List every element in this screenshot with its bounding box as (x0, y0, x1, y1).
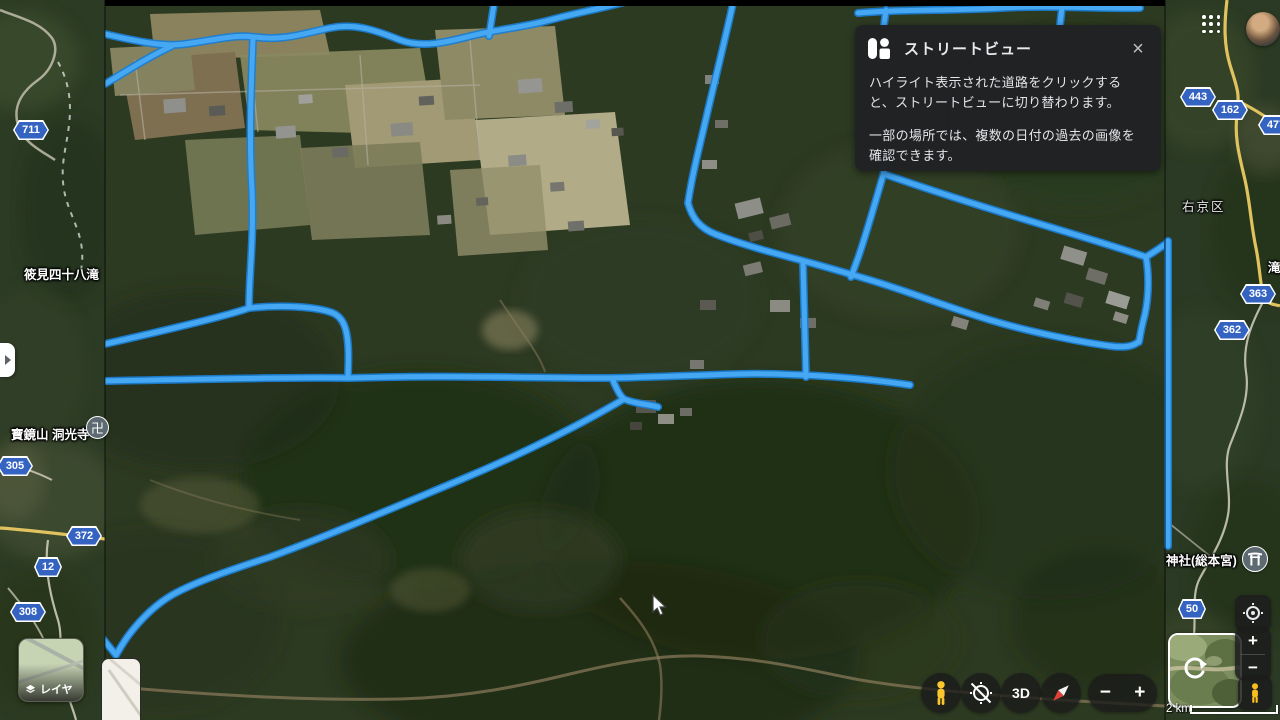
panel-paragraph-1: ハイライト表示された道路をクリックすると、ストリートビューに切り替わります。 (855, 73, 1161, 113)
route-shield-162: 162 (1212, 100, 1248, 120)
tilt-rotate-button[interactable] (961, 673, 1001, 713)
mini-zoom-in-button[interactable]: + (1235, 628, 1271, 654)
zoom-control: − + (1088, 674, 1157, 712)
google-apps-grid-icon[interactable] (1202, 15, 1221, 34)
shrine-torii-icon (1242, 546, 1268, 572)
panel-title: ストリートビュー (904, 38, 1127, 59)
3d-label: 3D (1012, 685, 1030, 701)
route-shield-477: 477 (1258, 115, 1280, 135)
right-seam (1164, 0, 1166, 720)
route-shield-363: 363 (1240, 284, 1276, 304)
scale-bar-line (1190, 712, 1278, 714)
mini-zoom-control: + − (1235, 628, 1271, 680)
route-shield-443: 443 (1180, 87, 1216, 107)
mini-pegman-button[interactable] (1238, 676, 1272, 710)
layers-button[interactable]: レイヤ (18, 638, 84, 702)
route-shield-308: 308 (10, 602, 46, 622)
place-label-temple: 寶鏡山 洞光寺 (11, 424, 89, 443)
route-shield-305: 305 (0, 456, 33, 476)
route-shield-711: 711 (13, 120, 49, 140)
close-icon[interactable]: × (1127, 38, 1149, 60)
compass-needle-icon (1048, 680, 1074, 706)
scale-bar-right-tick (1276, 705, 1278, 714)
place-label-falls: 筱見四十八滝 (24, 264, 99, 283)
pegman-icon (930, 680, 952, 706)
route-shield-372: 372 (66, 526, 102, 546)
my-location-button[interactable] (1235, 595, 1271, 631)
street-view-info-panel: ストリートビュー × ハイライト表示された道路をクリックすると、ストリートビュー… (855, 25, 1161, 171)
route-shield-12: 12 (34, 557, 62, 577)
letterbox-bar (105, 0, 1165, 6)
zoom-in-button[interactable]: + (1123, 674, 1158, 712)
panel-paragraph-2: 一部の場所では、複数の日付の過去の画像を確認できます。 (855, 126, 1161, 166)
compass-button[interactable] (1041, 673, 1081, 713)
google-maps-street-view-coverage-screen: 711 305 372 12 308 443 162 477 363 362 5… (0, 0, 1280, 720)
route-shield-362: 362 (1214, 320, 1250, 340)
place-label-taki: 滝 (1268, 257, 1280, 276)
place-label-ukyo-ward: 右京区 (1182, 196, 1226, 215)
layers-label: レイヤ (40, 681, 73, 697)
temple-manji-icon: 卍 (86, 416, 109, 439)
target-icon (1242, 602, 1264, 624)
street-view-coverage-icon (867, 36, 892, 61)
undo-rotate-icon (1180, 653, 1210, 683)
scale-label: 2 km (1166, 703, 1191, 715)
left-seam (104, 0, 106, 720)
mini-pegman-icon (1246, 682, 1264, 704)
chevron-right-icon (5, 355, 11, 365)
zoom-out-button[interactable]: − (1088, 674, 1123, 712)
expand-side-panel-button[interactable] (0, 343, 15, 377)
place-label-shrine: 神社(総本宮) (1166, 550, 1237, 569)
street-view-preview-thumbnail[interactable] (1168, 633, 1242, 708)
mouse-cursor (648, 593, 670, 617)
route-shield-50: 50 (1178, 599, 1206, 619)
pegman-button[interactable] (921, 673, 961, 713)
background-map-card (101, 658, 141, 720)
layers-icon (25, 684, 36, 695)
3d-view-button[interactable]: 3D (1001, 673, 1041, 713)
rotation-disabled-icon (969, 681, 993, 705)
avatar[interactable] (1246, 12, 1280, 46)
